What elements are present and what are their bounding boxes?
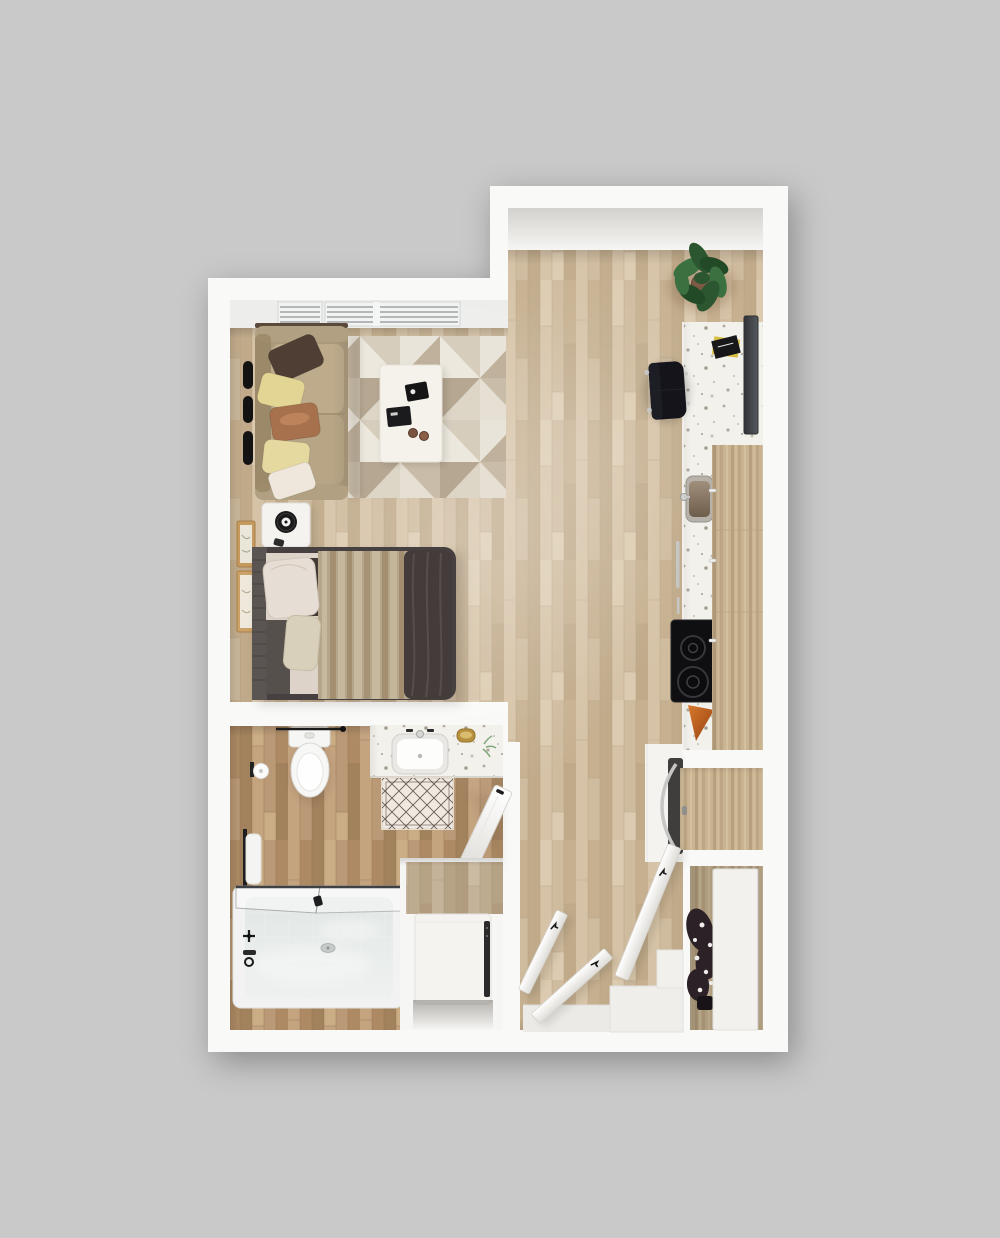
bed-blanket (318, 551, 410, 699)
closets (680, 768, 763, 1030)
vanity (370, 725, 503, 777)
vanity-sink (392, 729, 448, 774)
entry-closet (682, 866, 763, 1030)
sofa (255, 323, 360, 501)
sliding-panel (713, 869, 758, 1030)
wall-tv (744, 316, 758, 434)
bed-pillow-1 (262, 556, 320, 619)
washer-dryer (415, 914, 491, 1004)
glass-shower-screen (236, 886, 401, 913)
bathtub (233, 886, 403, 1008)
coffee-table (380, 365, 445, 464)
bed-pillow-2 (283, 615, 322, 672)
step-column (657, 950, 683, 988)
shadow-left-wall (230, 328, 242, 702)
alarm-clock (275, 511, 297, 533)
laundry-niche (400, 858, 503, 1030)
dark-duvet (404, 550, 452, 699)
window-blinds (278, 302, 460, 326)
refrigerator (645, 744, 683, 862)
toilet (289, 727, 332, 803)
wall-mounted-bars (243, 361, 253, 465)
floorplan-canvas: Studio apartment floor plan - 3D top-dow… (0, 0, 1000, 1238)
soap-dish (457, 729, 475, 742)
wardrobe-cabinet (680, 768, 763, 850)
floorplan-svg: Studio apartment floor plan - 3D top-dow… (0, 0, 1000, 1238)
cooktop (671, 620, 716, 702)
coffee-cup-2 (420, 432, 429, 441)
coffee-cup-1 (409, 429, 418, 438)
step-platform (610, 986, 683, 1032)
table-device (386, 406, 412, 427)
nightstand (262, 503, 314, 551)
grab-bar-towel (243, 829, 261, 892)
bath-mat (382, 778, 453, 829)
upper-cabinets (709, 445, 763, 750)
queen-bed (252, 547, 462, 704)
cookbook (711, 335, 741, 359)
